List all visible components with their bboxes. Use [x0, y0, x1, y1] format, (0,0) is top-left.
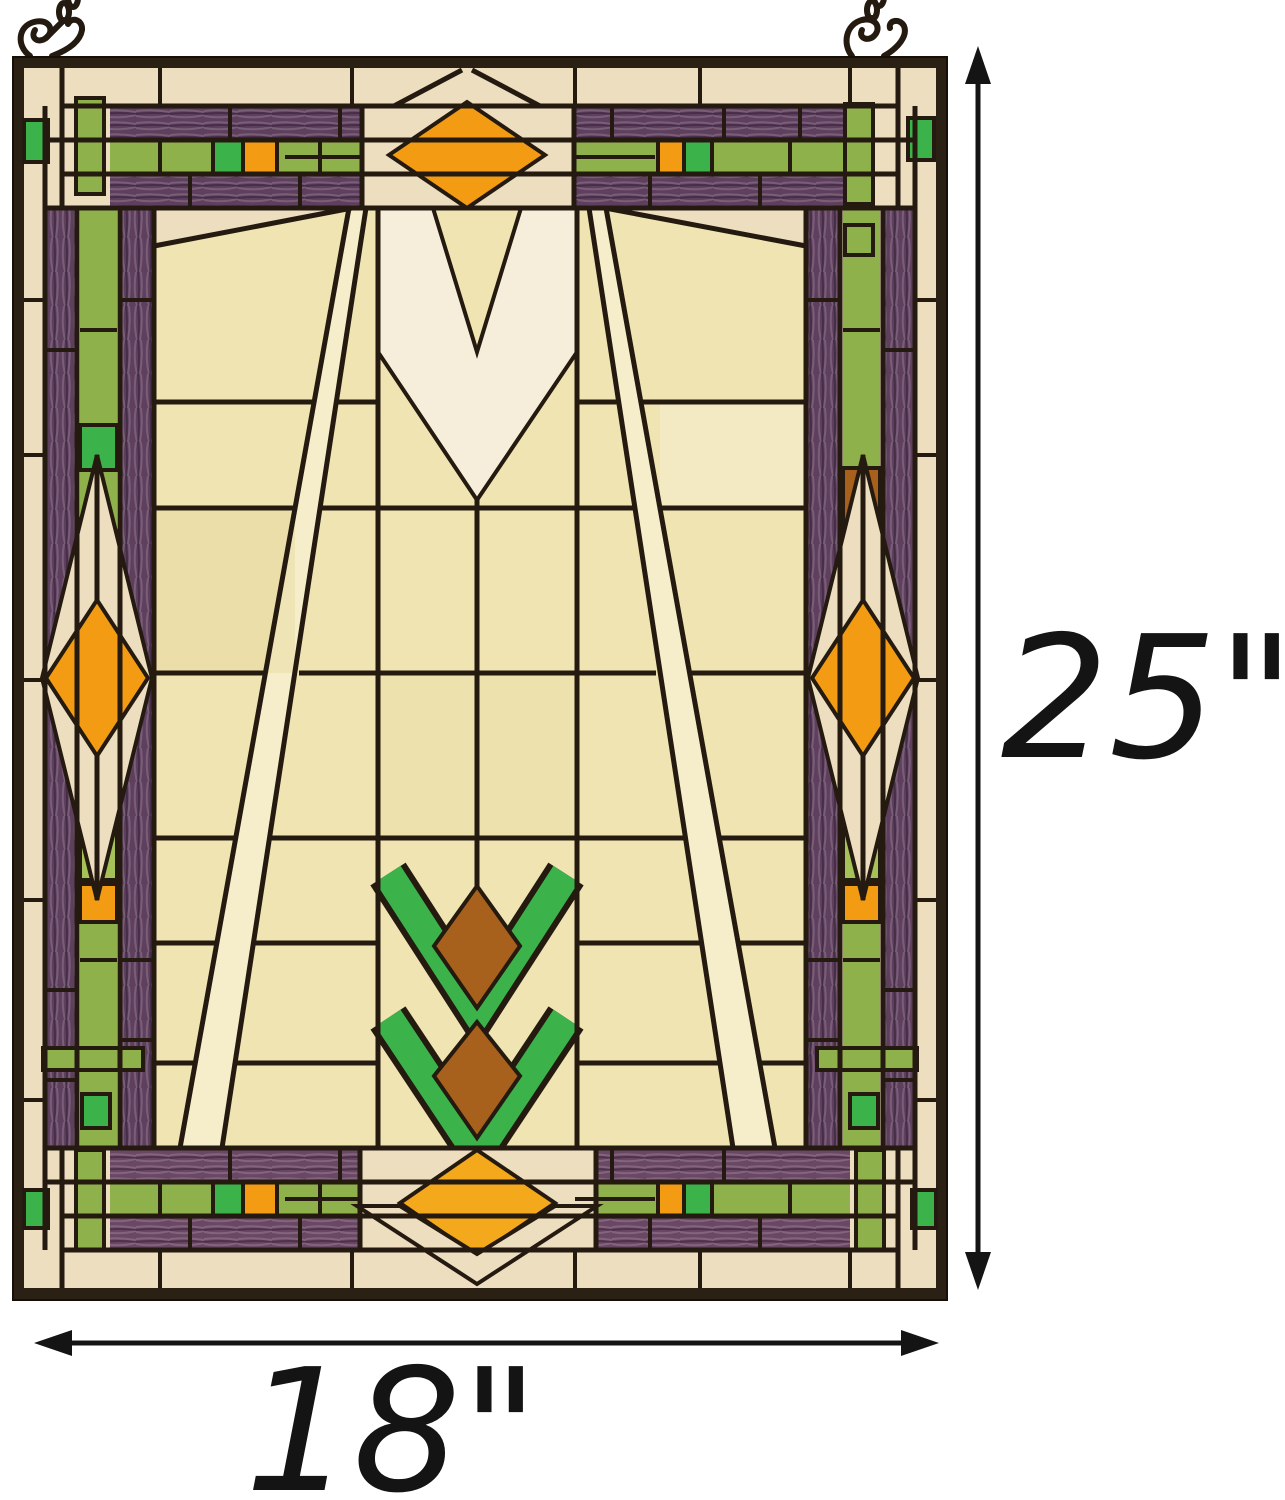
product-dimension-image: 25" 18": [0, 0, 1285, 1500]
height-arrow-up-icon: [965, 46, 991, 84]
width-dimension: 18": [34, 1330, 939, 1500]
width-dimension-label: 18": [245, 1333, 540, 1500]
width-arrow-right-icon: [901, 1330, 939, 1356]
height-arrow-down-icon: [965, 1252, 991, 1290]
height-dimension-label: 25": [1001, 600, 1285, 798]
stained-glass-dimension-figure: 25" 18": [0, 0, 1285, 1500]
height-dimension: 25": [965, 46, 1285, 1290]
width-arrow-left-icon: [34, 1330, 72, 1356]
hanging-chain-left-icon: [21, 0, 82, 56]
stained-glass-panel: [13, 0, 947, 1300]
hanging-chain-right-icon: [847, 0, 905, 56]
